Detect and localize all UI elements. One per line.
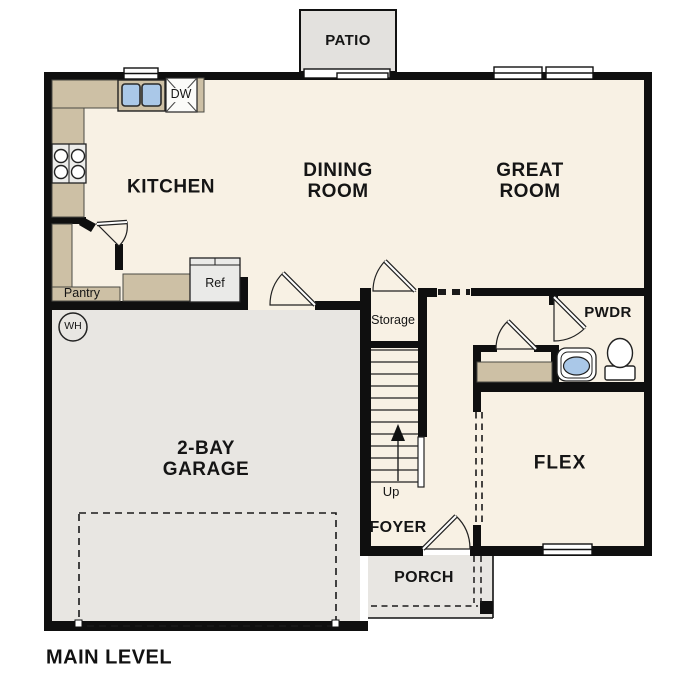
counter-top xyxy=(52,80,118,108)
wall-garage-stair xyxy=(360,288,371,556)
burner xyxy=(55,166,68,179)
dining-room-label-line2: ROOM xyxy=(303,181,373,202)
garage-label-line2: GARAGE xyxy=(163,459,249,480)
storage-label: Storage xyxy=(371,314,415,328)
wall-flex-left-stub-bottom xyxy=(473,525,481,555)
great-room-label: GREAT ROOM xyxy=(496,160,564,202)
wall-flex-top xyxy=(473,382,652,392)
stove xyxy=(52,144,86,183)
wall-storage-nub xyxy=(418,288,437,297)
great-room-label-line2: ROOM xyxy=(496,181,564,202)
patio-label: PATIO xyxy=(325,33,371,50)
plan-title: MAIN LEVEL xyxy=(46,647,172,670)
counter-dw-sliver xyxy=(197,78,204,112)
floor-plan-drawing xyxy=(0,0,687,687)
pantry-label: Pantry xyxy=(64,287,100,301)
ref-label: Ref xyxy=(205,277,224,291)
sink-basin-left xyxy=(122,84,140,106)
wall-ref-stub xyxy=(240,277,248,301)
greatroom-window-right xyxy=(546,67,593,79)
foyer-label: FOYER xyxy=(369,519,426,537)
garage-label: 2-BAY GARAGE xyxy=(163,438,249,480)
greatroom-window-left xyxy=(494,67,542,79)
powder-sink xyxy=(557,348,596,381)
wall-storage-right xyxy=(418,288,427,437)
stair-handrail xyxy=(418,437,424,487)
closet-shelf xyxy=(477,362,552,382)
burner xyxy=(72,150,85,163)
floor-plan: PATIO KITCHEN DINING ROOM GREAT ROOM 2-B… xyxy=(0,0,687,687)
flex-label: FLEX xyxy=(534,453,587,474)
kitchen-label: KITCHEN xyxy=(127,177,215,198)
wh-label: WH xyxy=(64,321,82,333)
kitchen-sink xyxy=(118,80,165,111)
sink-basin-right xyxy=(142,84,161,106)
wall-exterior-left xyxy=(44,72,52,631)
burner xyxy=(72,166,85,179)
great-room-label-line1: GREAT xyxy=(496,160,564,181)
dining-room-label: DINING ROOM xyxy=(303,160,373,202)
counter-left-lower xyxy=(52,183,84,217)
wall-exterior-right xyxy=(644,72,652,556)
wall-pantry-top xyxy=(44,217,86,224)
patio-sliding-door xyxy=(304,69,390,79)
flex-window xyxy=(543,544,592,555)
wall-flex-left-stub-top xyxy=(473,392,481,412)
dining-room-label-line1: DINING xyxy=(303,160,373,181)
up-label: Up xyxy=(383,485,400,499)
pwdr-label: PWDR xyxy=(584,305,631,322)
counter-left-upper xyxy=(52,108,84,145)
kitchen-window xyxy=(124,68,158,79)
wall-kitchen-garage-right xyxy=(315,301,362,310)
porch-label: PORCH xyxy=(394,569,454,587)
wall-pantry-stub xyxy=(115,244,123,270)
burner xyxy=(55,150,68,163)
porch-post xyxy=(480,601,493,614)
counter-ref xyxy=(123,274,190,301)
toilet xyxy=(605,339,635,381)
garage-label-line1: 2-BAY xyxy=(163,438,249,459)
dw-label: DW xyxy=(170,88,193,102)
wall-storage-bottom xyxy=(368,341,418,348)
